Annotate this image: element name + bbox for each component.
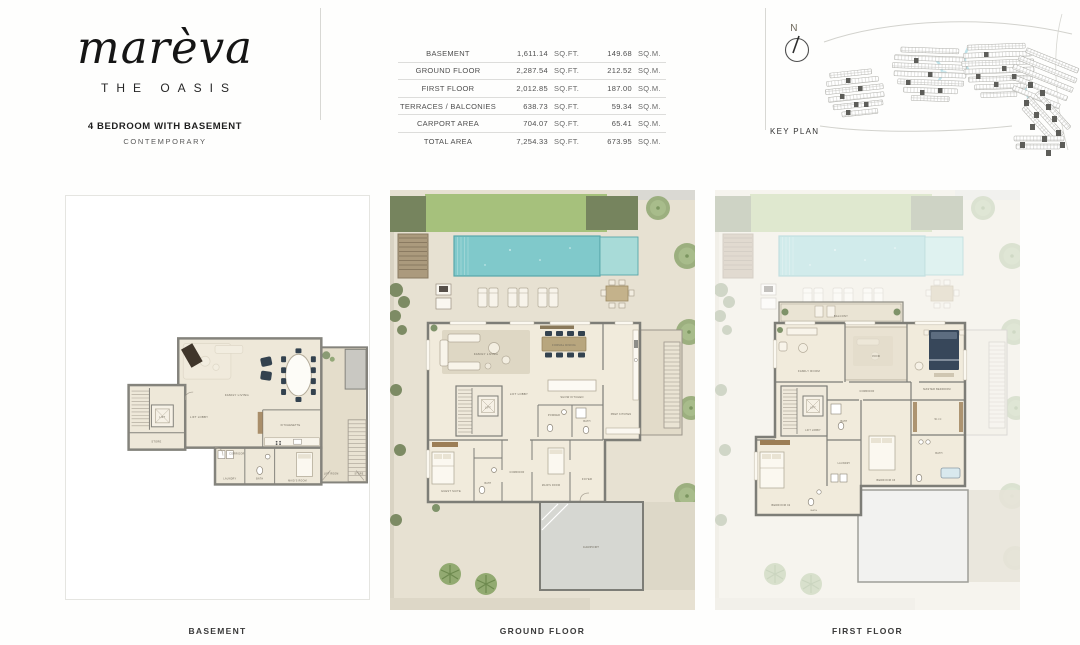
room-label-corridor: CORRIDOR xyxy=(859,390,874,393)
room-label-lift: LIFT xyxy=(485,407,491,410)
room-label-bath: BATH xyxy=(256,477,263,480)
row-sqm: 149.68 xyxy=(588,49,632,58)
row-sqft: 7,254.33 xyxy=(498,137,548,146)
keyplan-map xyxy=(816,10,1080,160)
room-label-carport: CARPORT xyxy=(583,545,599,549)
room-label-dining: FORMAL DINING xyxy=(552,343,576,347)
basement-floorplan: FAMILY LIVING LIFT LOBBY LIFT STORE KITC… xyxy=(66,196,369,599)
room-label-guest: GUEST SUITE xyxy=(441,489,461,493)
table-row-total: TOTAL AREA 7,254.33 SQ.FT. 673.95 SQ.M. xyxy=(398,133,666,150)
table-row: CARPORT AREA 704.07 SQ.FT. 65.41 SQ.M. xyxy=(398,115,666,133)
ground-floorplan: FAMILY LIVING FORMAL DINING SHOW KITCHEN… xyxy=(390,190,695,610)
room-label-lift-lobby: LIFT LOBBY xyxy=(510,392,528,396)
row-sqft-unit: SQ.FT. xyxy=(548,49,588,58)
compass-icon: N xyxy=(779,20,819,70)
room-label-master-bath: BATH xyxy=(935,452,942,455)
row-sqm-unit: SQ.M. xyxy=(632,49,664,58)
room-label-store2: STORE xyxy=(355,473,364,475)
room-label-liftroom: LIFT ROOM xyxy=(324,473,339,475)
room-label-master: MASTER BEDROOM xyxy=(923,388,951,391)
unit-style: CONTEMPORARY xyxy=(55,137,275,146)
row-sqm: 65.41 xyxy=(588,119,632,128)
table-row: TERRACES / BALCONIES 638.73 SQ.FT. 59.34… xyxy=(398,98,666,116)
room-label-kitchenette: KITCHENETTE xyxy=(281,424,301,427)
table-row: BASEMENT 1,611.14 SQ.FT. 149.68 SQ.M. xyxy=(398,45,666,63)
row-sqft-unit: SQ.FT. xyxy=(548,119,588,128)
row-label: GROUND FLOOR xyxy=(398,66,498,75)
row-sqm: 187.00 xyxy=(588,84,632,93)
row-label: TOTAL AREA xyxy=(398,137,498,146)
row-label: CARPORT AREA xyxy=(398,119,498,128)
header-divider-left xyxy=(320,8,321,120)
row-sqm: 212.52 xyxy=(588,66,632,75)
brand-logo: marèva xyxy=(55,24,275,72)
header-divider-right xyxy=(765,8,766,130)
room-label-bath2: BATH xyxy=(811,509,818,512)
caption-basement: BASEMENT xyxy=(65,626,370,636)
room-label-lobby: LIFT LOBBY xyxy=(805,430,821,432)
room-label-bed3: BEDROOM 03 xyxy=(877,479,896,482)
room-label-family-living: FAMILY LIVING xyxy=(225,393,250,397)
row-sqft: 638.73 xyxy=(498,102,548,111)
room-label-powder: POWDER xyxy=(548,414,560,417)
unit-block: 4 BEDROOM WITH BASEMENT CONTEMPORARY xyxy=(55,121,275,146)
row-sqm-unit: SQ.M. xyxy=(632,66,664,75)
room-label-store: STORE xyxy=(151,440,161,444)
room-label-bath3: BATH xyxy=(841,420,848,423)
row-sqft-unit: SQ.FT. xyxy=(548,84,588,93)
room-label-show-kitchen: SHOW KITCHEN xyxy=(560,395,583,399)
caption-ground: GROUND FLOOR xyxy=(390,626,695,636)
first-floorplan: BALCONY FAMILY ROOM VOID MASTER BEDROOM … xyxy=(715,190,1020,610)
room-label-lift: LIFT xyxy=(810,408,816,410)
table-row: GROUND FLOOR 2,287.54 SQ.FT. 212.52 SQ.M… xyxy=(398,63,666,81)
row-sqm-unit: SQ.M. xyxy=(632,102,664,111)
room-label-bath: BATH xyxy=(583,420,590,423)
row-sqft: 2,012.85 xyxy=(498,84,548,93)
row-sqm: 59.34 xyxy=(588,102,632,111)
row-sqft: 2,287.54 xyxy=(498,66,548,75)
compass-north-label: N xyxy=(790,23,797,34)
brand-block: marèva THE OASIS xyxy=(55,24,275,95)
room-label-family: FAMILY ROOM xyxy=(798,369,820,373)
room-label-balcony: BALCONY xyxy=(834,314,848,318)
room-label-guest-bath: BATH xyxy=(485,482,492,485)
row-sqm-unit: SQ.M. xyxy=(632,119,664,128)
row-label: FIRST FLOOR xyxy=(398,84,498,93)
table-row: FIRST FLOOR 2,012.85 SQ.FT. 187.00 SQ.M. xyxy=(398,80,666,98)
room-label-corridor: CORRIDOR xyxy=(509,471,524,474)
room-label-maid: MAID'S ROOM xyxy=(542,484,560,487)
row-label: BASEMENT xyxy=(398,49,498,58)
ground-plan-panel: FAMILY LIVING FORMAL DINING SHOW KITCHEN… xyxy=(390,190,695,610)
room-label-corridor: CORRIDOR xyxy=(229,453,244,456)
room-label-laundry: LAUNDRY xyxy=(223,477,236,480)
keyplan-caption: KEY PLAN xyxy=(770,127,819,136)
room-label-prep-kitchen: PREP KITCHEN xyxy=(611,413,632,416)
room-label-lift: LIFT xyxy=(159,416,165,419)
basement-plan-panel: FAMILY LIVING LIFT LOBBY LIFT STORE KITC… xyxy=(65,195,370,600)
room-label-lift-lobby: LIFT LOBBY xyxy=(190,415,208,419)
row-sqft-unit: SQ.FT. xyxy=(548,102,588,111)
brand-subtitle: THE OASIS xyxy=(55,81,275,95)
row-sqft: 1,611.14 xyxy=(498,49,548,58)
row-sqm-unit: SQ.M. xyxy=(632,84,664,93)
area-summary-table: BASEMENT 1,611.14 SQ.FT. 149.68 SQ.M. GR… xyxy=(398,45,666,150)
room-label-void: VOID xyxy=(872,354,881,358)
row-sqm-unit: SQ.M. xyxy=(632,137,664,146)
room-label-laundry: LAUNDRY xyxy=(838,462,851,465)
room-label-bed2: BEDROOM 02 xyxy=(772,504,791,507)
row-sqft: 704.07 xyxy=(498,119,548,128)
row-sqm: 673.95 xyxy=(588,137,632,146)
row-label: TERRACES / BALCONIES xyxy=(398,102,498,111)
first-plan-panel: BALCONY FAMILY ROOM VOID MASTER BEDROOM … xyxy=(715,190,1020,610)
room-label-living: FAMILY LIVING xyxy=(474,352,499,356)
room-label-wic: W.I.C xyxy=(934,418,941,421)
room-label-foyer: FOYER xyxy=(582,477,592,481)
row-sqft-unit: SQ.FT. xyxy=(548,137,588,146)
row-sqft-unit: SQ.FT. xyxy=(548,66,588,75)
unit-title: 4 BEDROOM WITH BASEMENT xyxy=(55,121,275,132)
caption-first: FIRST FLOOR xyxy=(715,626,1020,636)
room-label-maid: MAID'S ROOM xyxy=(288,479,307,482)
keyplan-cluster xyxy=(824,68,886,119)
